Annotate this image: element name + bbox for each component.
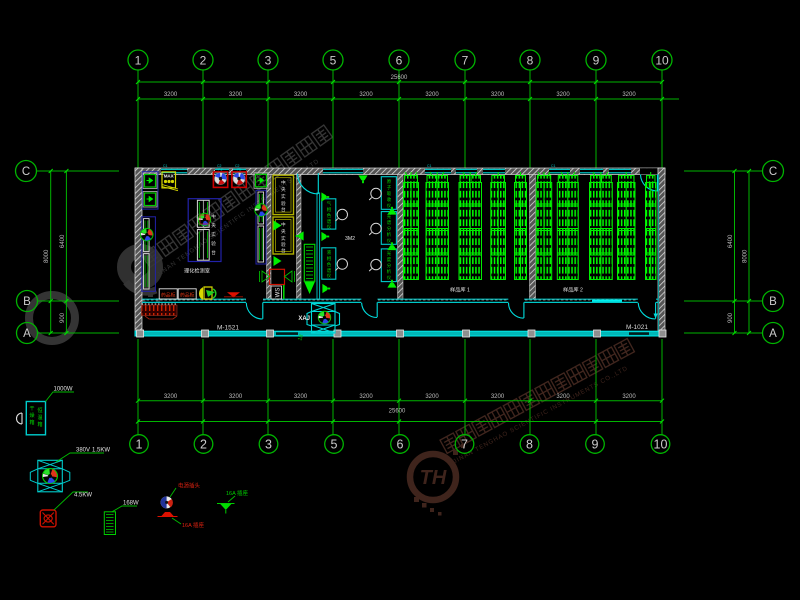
svg-text:6: 6	[397, 438, 404, 452]
svg-text:验: 验	[281, 200, 286, 207]
svg-text:央: 央	[281, 228, 286, 235]
svg-text:5: 5	[330, 54, 337, 68]
svg-text:900: 900	[60, 312, 66, 323]
svg-text:2: 2	[200, 438, 207, 452]
svg-text:药品柜: 药品柜	[161, 292, 176, 299]
svg-text:C: C	[769, 166, 777, 178]
svg-text:6400: 6400	[60, 234, 66, 248]
svg-text:9: 9	[593, 54, 600, 68]
svg-text:色: 色	[327, 261, 332, 267]
svg-text:央: 央	[211, 222, 216, 229]
svg-text:P2: P2	[237, 168, 242, 172]
svg-text:XAJ: XAJ	[298, 316, 310, 322]
svg-text:3: 3	[265, 438, 272, 452]
svg-text:MAX: MAX	[164, 173, 174, 178]
svg-text:C1: C1	[427, 164, 432, 168]
svg-text:3200: 3200	[229, 92, 243, 98]
svg-text:箱: 箱	[37, 421, 42, 428]
svg-text:3200: 3200	[491, 394, 505, 400]
svg-text:液: 液	[327, 249, 332, 256]
svg-text:8000: 8000	[743, 249, 749, 263]
svg-text:相: 相	[327, 255, 332, 262]
svg-text:燥: 燥	[29, 412, 34, 419]
svg-text:6400: 6400	[728, 234, 734, 248]
svg-text:样品库 2: 样品库 2	[563, 286, 583, 294]
svg-text:气: 气	[327, 200, 332, 206]
svg-text:1000W: 1000W	[53, 387, 72, 393]
svg-text:A: A	[769, 328, 777, 340]
svg-text:验: 验	[281, 241, 286, 248]
svg-text:仪: 仪	[327, 224, 332, 229]
svg-text:1: 1	[135, 54, 142, 68]
svg-text:3200: 3200	[622, 394, 636, 400]
svg-text:B: B	[769, 296, 777, 308]
svg-text:10: 10	[655, 54, 669, 68]
svg-text:C: C	[22, 166, 30, 178]
svg-text:3200: 3200	[556, 394, 570, 400]
svg-text:实: 实	[281, 193, 286, 200]
svg-text:仪: 仪	[387, 238, 392, 243]
svg-text:8000: 8000	[44, 249, 50, 263]
svg-text:M-1021: M-1021	[626, 324, 648, 331]
svg-text:干: 干	[29, 406, 34, 412]
svg-text:7: 7	[462, 54, 469, 68]
svg-text:原: 原	[387, 179, 392, 184]
svg-text:恒: 恒	[37, 407, 42, 414]
svg-text:分: 分	[387, 262, 392, 269]
svg-text:3200: 3200	[164, 394, 178, 400]
svg-text:25600: 25600	[389, 409, 406, 415]
svg-text:光: 光	[387, 250, 392, 257]
svg-text:3200: 3200	[294, 394, 308, 400]
svg-text:温: 温	[37, 414, 42, 421]
svg-text:箱: 箱	[29, 419, 34, 426]
svg-text:度: 度	[387, 256, 392, 263]
svg-text:相: 相	[327, 206, 332, 213]
svg-text:台: 台	[211, 249, 216, 256]
svg-text:8: 8	[526, 438, 533, 452]
svg-text:9: 9	[592, 438, 599, 452]
svg-text:3200: 3200	[622, 92, 636, 98]
svg-text:3200: 3200	[491, 92, 505, 98]
svg-text:7: 7	[461, 438, 468, 452]
svg-text:中: 中	[281, 221, 286, 228]
svg-text:中: 中	[211, 213, 216, 220]
svg-text:6: 6	[396, 54, 403, 68]
svg-text:仪: 仪	[327, 273, 332, 278]
svg-text:10: 10	[654, 438, 668, 452]
svg-text:WS: WS	[276, 288, 282, 298]
svg-text:3200: 3200	[229, 394, 243, 400]
svg-text:子: 子	[387, 184, 392, 190]
svg-text:25600: 25600	[391, 75, 408, 81]
svg-text:2: 2	[200, 54, 207, 68]
svg-text:析: 析	[387, 268, 392, 275]
svg-text:电源插头: 电源插头	[178, 482, 201, 490]
svg-text:分: 分	[387, 225, 392, 232]
svg-text:C1: C1	[551, 164, 556, 168]
svg-text:4.5KW: 4.5KW	[74, 493, 92, 499]
svg-text:3: 3	[265, 54, 272, 68]
svg-text:实: 实	[281, 235, 286, 242]
svg-text:3200: 3200	[359, 394, 373, 400]
svg-text:仪: 仪	[387, 275, 392, 280]
svg-text:中: 中	[281, 179, 286, 186]
svg-text:P1: P1	[218, 168, 223, 172]
svg-text:台: 台	[281, 247, 286, 254]
svg-text:900: 900	[728, 312, 734, 323]
svg-text:C1: C1	[163, 164, 168, 168]
svg-text:3200: 3200	[294, 92, 308, 98]
svg-text:3200: 3200	[164, 92, 178, 98]
svg-text:药品柜: 药品柜	[180, 292, 195, 299]
svg-text:1: 1	[136, 438, 143, 452]
svg-text:16A 插座: 16A 插座	[182, 521, 205, 529]
svg-text:168W: 168W	[123, 501, 139, 507]
svg-text:收: 收	[387, 196, 392, 203]
svg-text:8: 8	[527, 54, 534, 68]
svg-text:台: 台	[281, 206, 286, 213]
svg-text:样品库 1: 样品库 1	[450, 286, 470, 294]
svg-text:1.5KW: 1.5KW	[92, 448, 110, 454]
svg-text:3200: 3200	[425, 394, 439, 400]
svg-text:B: B	[23, 296, 31, 308]
svg-text:TH: TH	[420, 467, 447, 489]
svg-text:16A 插座: 16A 插座	[226, 489, 249, 497]
svg-text:3200: 3200	[556, 92, 570, 98]
svg-text:央: 央	[281, 186, 286, 193]
svg-text:色: 色	[327, 212, 332, 218]
svg-text:5: 5	[331, 438, 338, 452]
svg-text:验: 验	[211, 240, 216, 247]
svg-text:实: 实	[211, 231, 216, 238]
svg-text:析: 析	[387, 231, 392, 238]
svg-text:380V: 380V	[76, 448, 90, 454]
svg-text:3M2: 3M2	[345, 236, 355, 242]
svg-text:3200: 3200	[359, 92, 373, 98]
svg-text:仪: 仪	[387, 203, 392, 208]
svg-text:3200: 3200	[425, 92, 439, 98]
svg-text:谱: 谱	[387, 219, 392, 226]
svg-text:M-1521: M-1521	[217, 325, 239, 332]
svg-text:A: A	[23, 328, 31, 340]
svg-text:理化检测室: 理化检测室	[184, 267, 210, 275]
